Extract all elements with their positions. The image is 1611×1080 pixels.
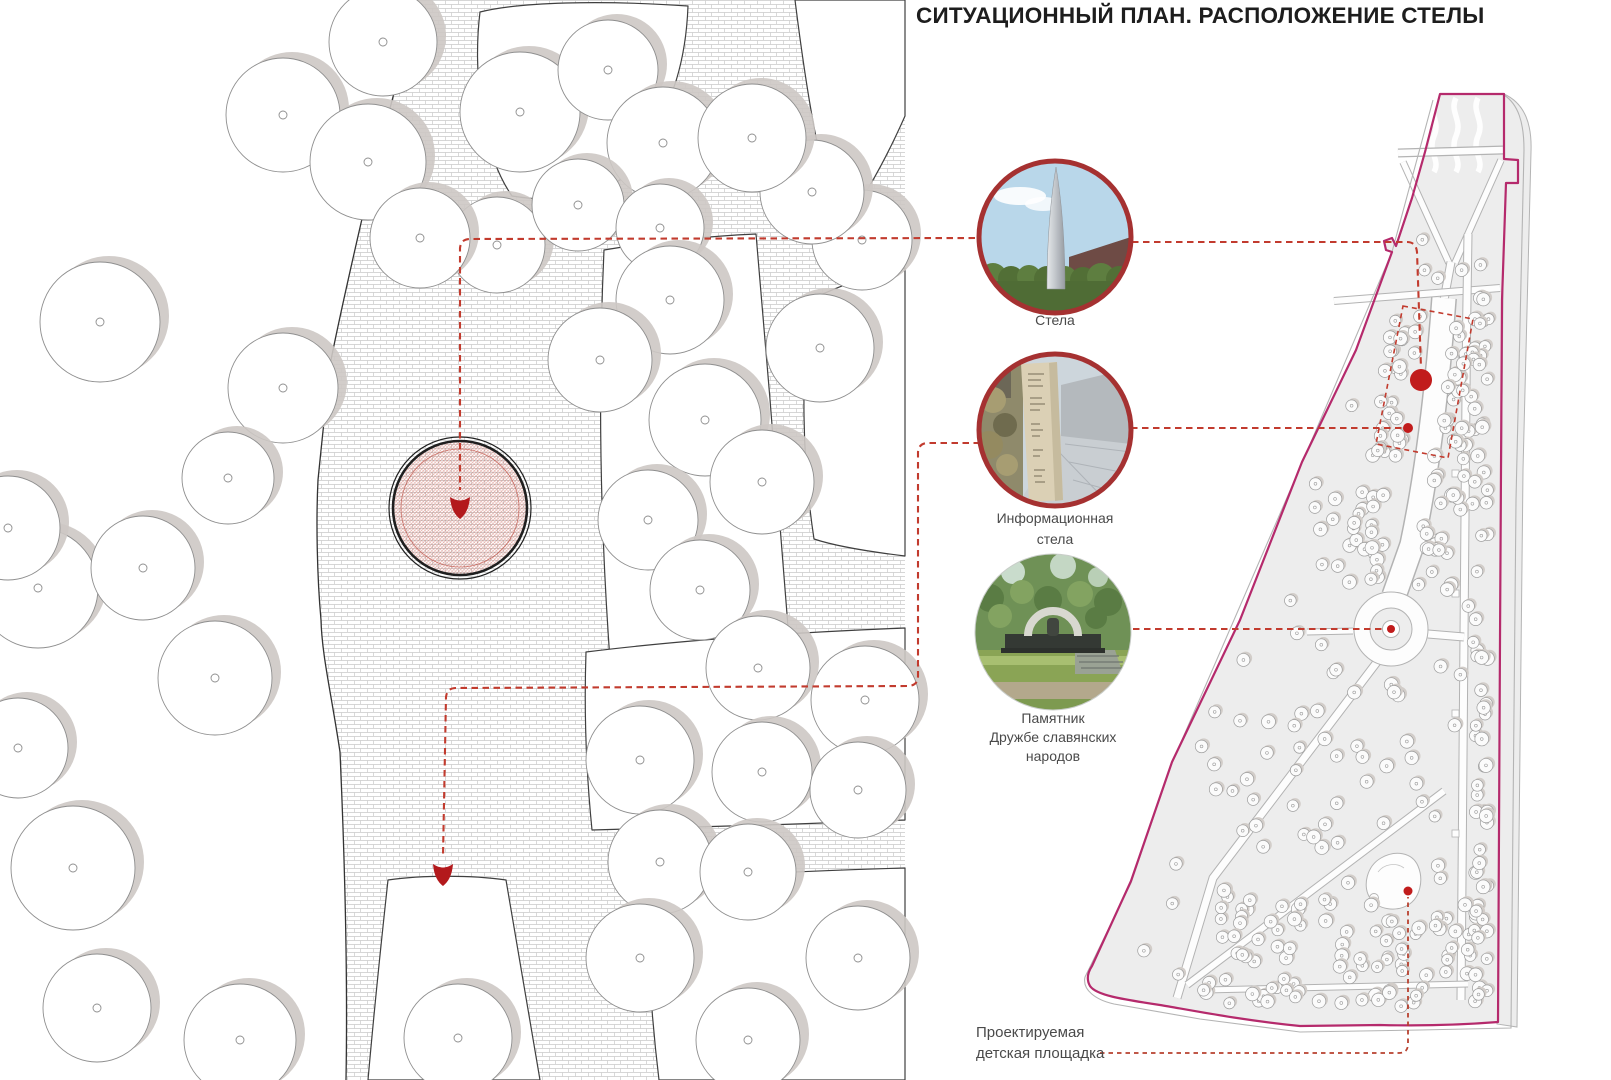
info-stela-dot [1403, 423, 1413, 433]
legend-label-info-stela: Информационная стела [940, 508, 1170, 550]
stela-dot [1410, 369, 1432, 391]
stela-spire-photo [979, 161, 1132, 313]
playground-dot [1404, 887, 1413, 896]
legend-label-monument: Памятник Дружбе славянских народов [938, 709, 1168, 766]
legend-label-stela: Стела [940, 311, 1170, 330]
park-overview-map [1085, 94, 1532, 1032]
situational-plan-board: СИТУАЦИОННЫЙ ПЛАН. РАСПОЛОЖЕНИЕ СТЕЛЫ Ст… [0, 0, 1611, 1080]
information-stela-photo [975, 354, 1131, 506]
plan-drawing [0, 0, 1611, 1080]
legend-photos [975, 161, 1132, 710]
legend-label-playground: Проектируемая детская площадка [976, 1022, 1176, 1064]
park-area [1088, 94, 1518, 1026]
monument-dot [1387, 625, 1395, 633]
page-title: СИТУАЦИОННЫЙ ПЛАН. РАСПОЛОЖЕНИЕ СТЕЛЫ [916, 3, 1556, 29]
site-plan-detail [0, 0, 928, 1080]
friendship-monument-photo [975, 553, 1131, 710]
